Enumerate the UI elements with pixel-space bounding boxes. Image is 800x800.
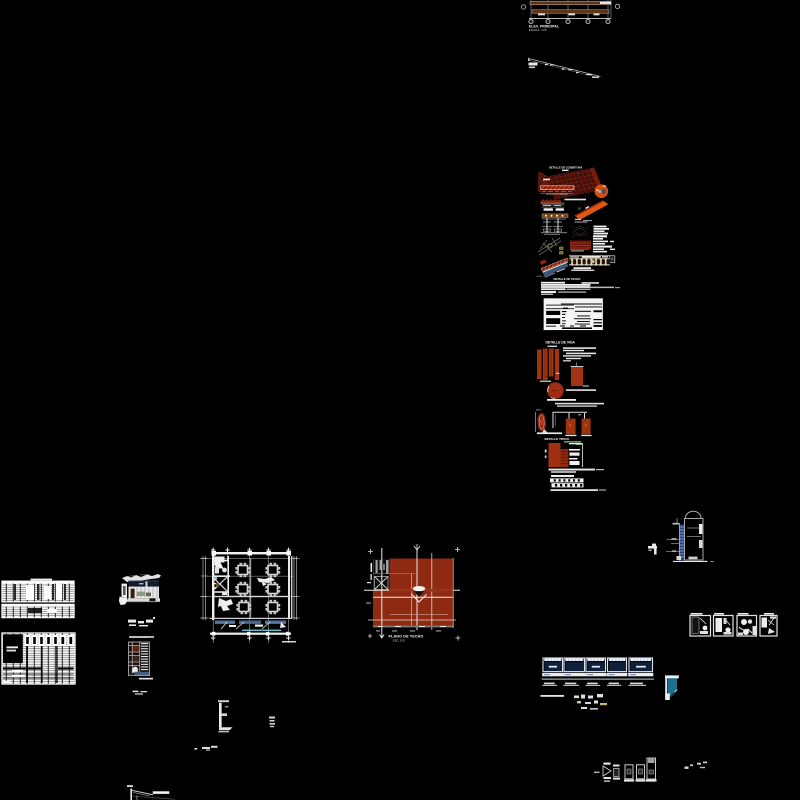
svg-text:DETALLE DE TECHO: DETALLE DE TECHO xyxy=(554,277,581,281)
svg-text:DETALLE DE VIGA: DETALLE DE VIGA xyxy=(546,340,576,344)
svg-text:ESC. 1/75: ESC. 1/75 xyxy=(393,638,405,642)
svg-text:DETALLE DE COBERTURA: DETALLE DE COBERTURA xyxy=(549,165,583,169)
svg-text:DETALLE DE CUMBRERA: DETALLE DE CUMBRERA xyxy=(546,193,568,196)
svg-text:DET.1: DET.1 xyxy=(536,410,542,412)
svg-text:PLANO DE TECHO: PLANO DE TECHO xyxy=(389,635,424,639)
svg-text:ESCALA : 1/75: ESCALA : 1/75 xyxy=(529,28,547,32)
svg-text:ALERO: ALERO xyxy=(537,275,544,278)
svg-text:DETALLE TIPICO: DETALLE TIPICO xyxy=(545,437,570,441)
